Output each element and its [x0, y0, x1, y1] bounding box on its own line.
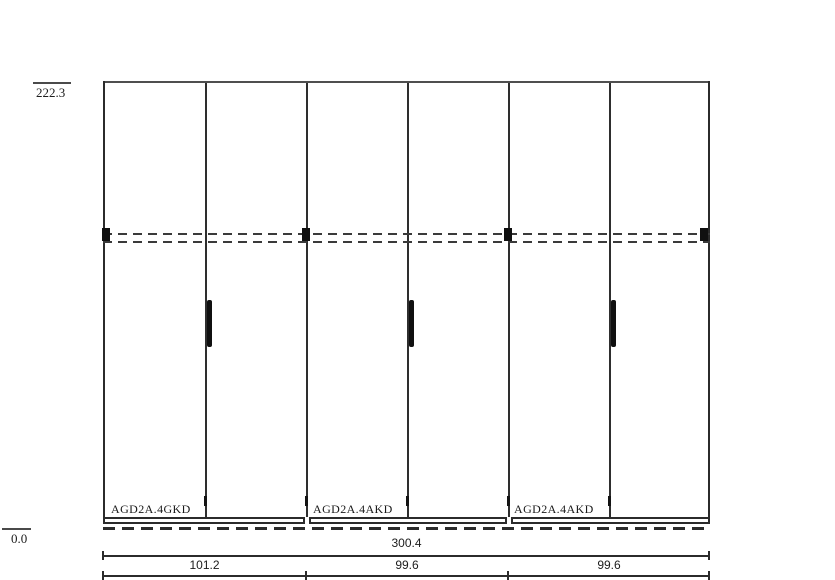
- bottom-hinge-mark-1: [204, 496, 207, 506]
- wardrobe-left-edge: [103, 81, 105, 522]
- door-handle-1: [207, 300, 212, 347]
- hidden-rail-dashed-line-lower: [103, 241, 710, 243]
- elevation-value-bottom: 0.0: [11, 531, 27, 547]
- elevation-datum-line-top: [33, 82, 71, 84]
- dimension-tick-modules-2: [305, 571, 307, 580]
- module-base-bar-1: [103, 517, 305, 524]
- dimension-line-total: [103, 555, 710, 557]
- dimension-line-modules: [103, 575, 710, 577]
- bottom-hinge-mark-5: [608, 496, 611, 506]
- module-label-3: AGD2A.4AKD: [514, 502, 594, 517]
- bottom-hinge-mark-3: [406, 496, 409, 506]
- rail-connector-mark-right: [700, 228, 708, 241]
- elevation-value-top: 222.3: [36, 85, 65, 101]
- bottom-hinge-mark-2: [305, 496, 308, 506]
- technical-drawing-canvas: 222.3 0.0: [0, 0, 835, 580]
- rail-connector-mark-mid-1: [302, 228, 310, 241]
- module-width-value-2: 99.6: [306, 558, 508, 572]
- plinth-dashed-line: [103, 527, 710, 530]
- elevation-datum-line-bottom: [2, 528, 31, 530]
- module-width-value-1: 101.2: [103, 558, 306, 572]
- dimension-tick-modules-3: [507, 571, 509, 580]
- wardrobe-right-edge: [708, 81, 710, 522]
- module-width-value-3: 99.6: [508, 558, 710, 572]
- rail-connector-mark-left: [102, 228, 110, 241]
- module-base-bar-3: [511, 517, 710, 524]
- door-handle-2: [409, 300, 414, 347]
- dimension-tick-modules-1: [102, 571, 104, 580]
- door-handle-3: [611, 300, 616, 347]
- dimension-tick-modules-4: [708, 571, 710, 580]
- module-label-2: AGD2A.4AKD: [313, 502, 393, 517]
- module-label-1: AGD2A.4GKD: [111, 502, 191, 517]
- wardrobe-front-view: AGD2A.4GKD AGD2A.4AKD AGD2A.4AKD: [103, 81, 710, 524]
- dimension-total-value: 300.4: [103, 536, 710, 550]
- hidden-rail-dashed-line-upper: [103, 233, 710, 235]
- bottom-hinge-mark-4: [507, 496, 510, 506]
- door-divider-2-module-boundary: [306, 83, 308, 517]
- rail-connector-mark-mid-2: [504, 228, 512, 241]
- module-base-bar-2: [309, 517, 507, 524]
- door-divider-4-module-boundary: [508, 83, 510, 517]
